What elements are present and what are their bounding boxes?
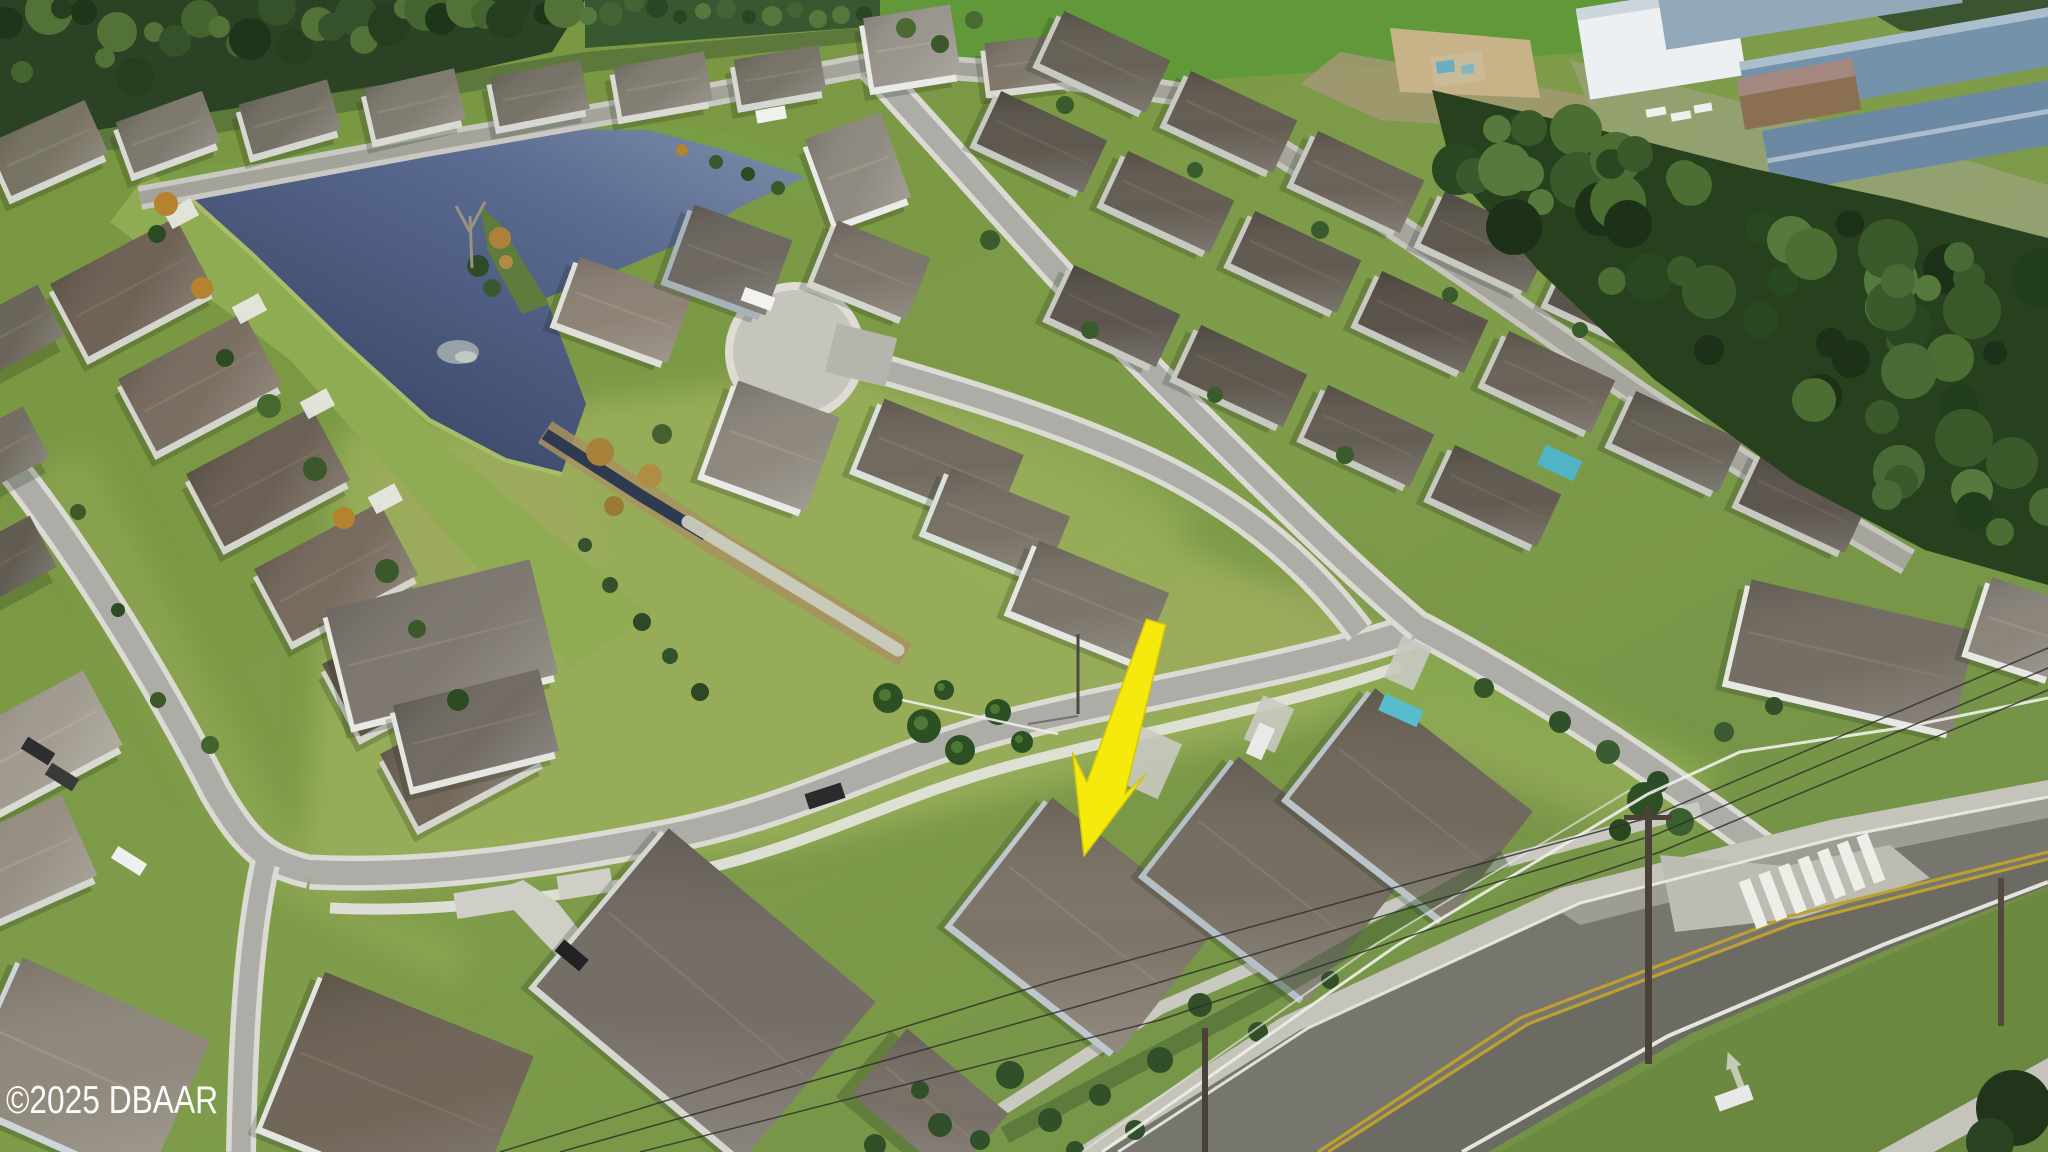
svg-text:©2025 DBAAR: ©2025 DBAAR xyxy=(6,1079,218,1122)
